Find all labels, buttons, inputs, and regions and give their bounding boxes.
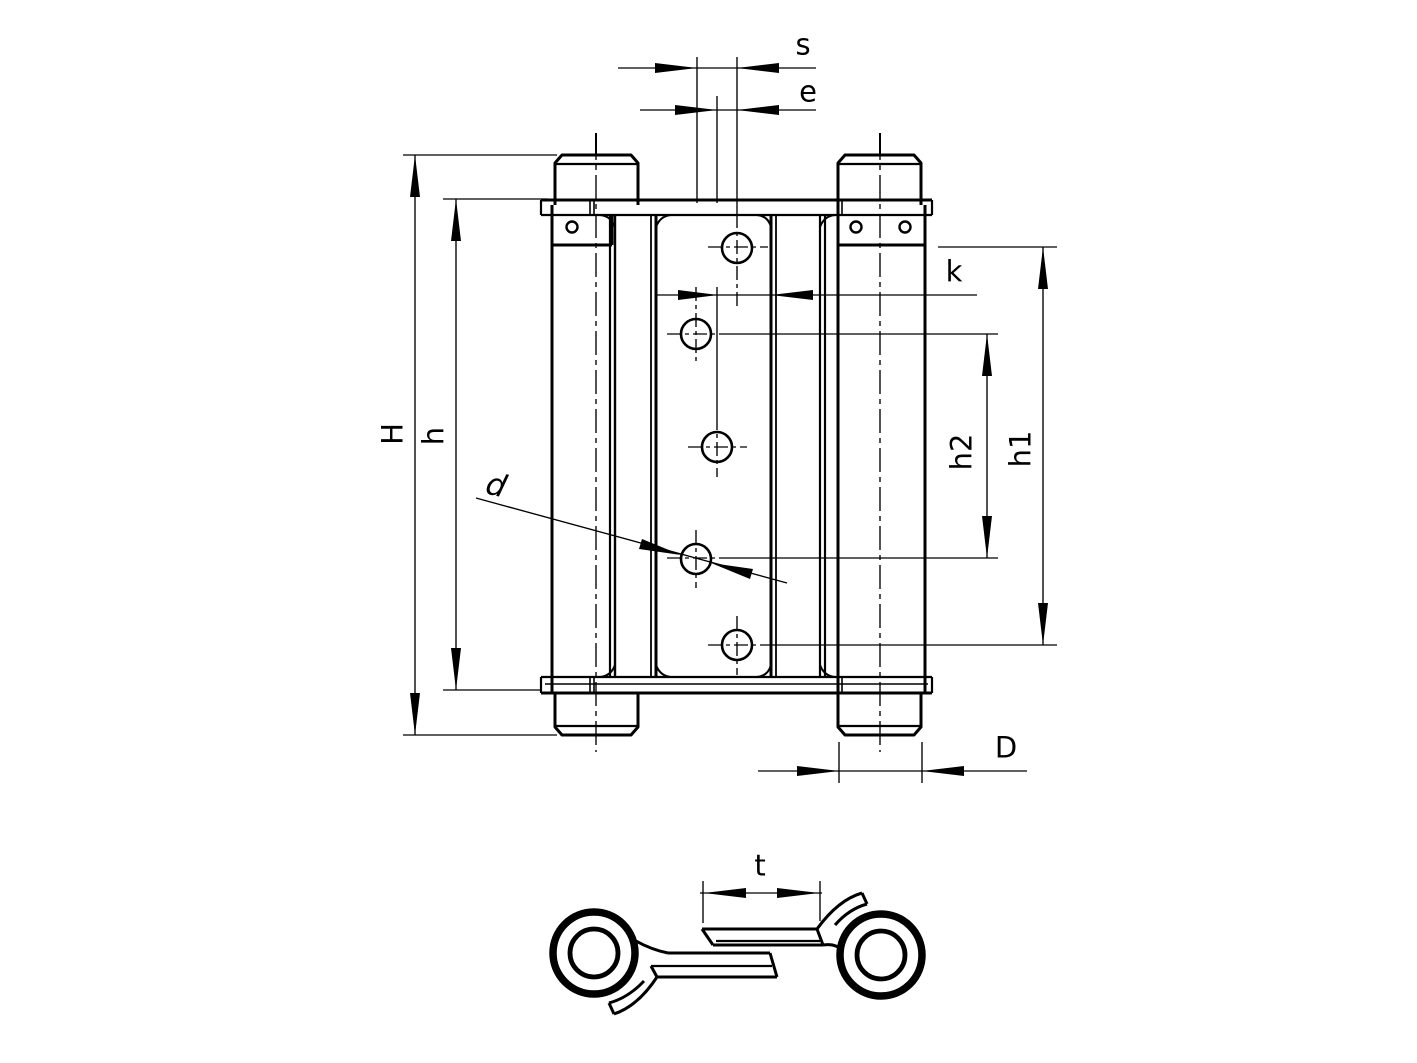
dim-label-h1: h1 <box>1007 431 1036 468</box>
dim-label-e: e <box>799 78 817 107</box>
dim-label-D: D <box>995 734 1017 763</box>
dim-label-h: h <box>420 427 449 445</box>
front-view <box>403 57 1057 783</box>
hinge-drawing-canvas <box>0 0 1417 1063</box>
dim-label-t: t <box>754 852 765 881</box>
dim-label-s: s <box>795 31 810 60</box>
dim-label-k: k <box>946 258 963 287</box>
dim-label-H: H <box>379 423 408 445</box>
section-view <box>553 881 922 1014</box>
dim-label-h2: h2 <box>948 434 977 471</box>
technical-drawing-page: s e k H h h2 h1 d D t <box>0 0 1417 1063</box>
